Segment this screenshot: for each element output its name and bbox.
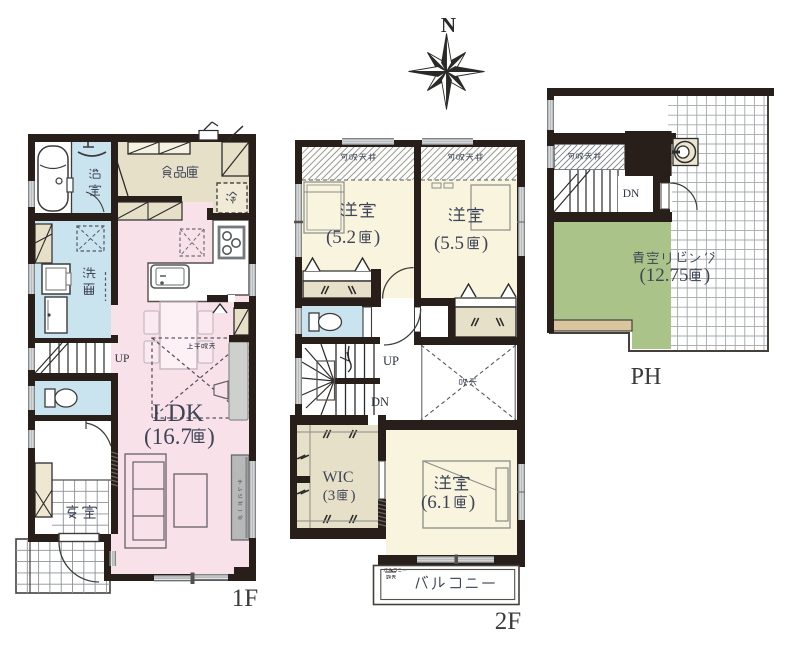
svg-text:): ) bbox=[482, 233, 488, 254]
svg-text:LDK: LDK bbox=[152, 400, 203, 427]
svg-text:UP: UP bbox=[383, 354, 399, 368]
svg-text:DN: DN bbox=[371, 395, 389, 409]
svg-text:(5.5: (5.5 bbox=[434, 233, 464, 254]
svg-text:(5.2: (5.2 bbox=[326, 227, 356, 248]
svg-text:2F: 2F bbox=[495, 608, 521, 635]
svg-text:WIC: WIC bbox=[322, 469, 353, 486]
svg-text:1F: 1F bbox=[232, 585, 258, 612]
svg-text:(6.1: (6.1 bbox=[421, 492, 451, 513]
svg-text:UP: UP bbox=[115, 353, 130, 365]
svg-text:): ) bbox=[351, 488, 356, 504]
svg-text:PH: PH bbox=[631, 364, 662, 390]
svg-text:DN: DN bbox=[623, 188, 640, 200]
svg-text:): ) bbox=[469, 492, 475, 513]
svg-text:): ) bbox=[207, 424, 215, 449]
svg-text:): ) bbox=[704, 265, 710, 286]
svg-text:(12.75: (12.75 bbox=[639, 265, 688, 286]
svg-text:(3: (3 bbox=[323, 488, 336, 504]
svg-text:): ) bbox=[374, 227, 380, 248]
svg-text:(16.7: (16.7 bbox=[144, 424, 192, 449]
svg-text:N: N bbox=[441, 13, 456, 37]
